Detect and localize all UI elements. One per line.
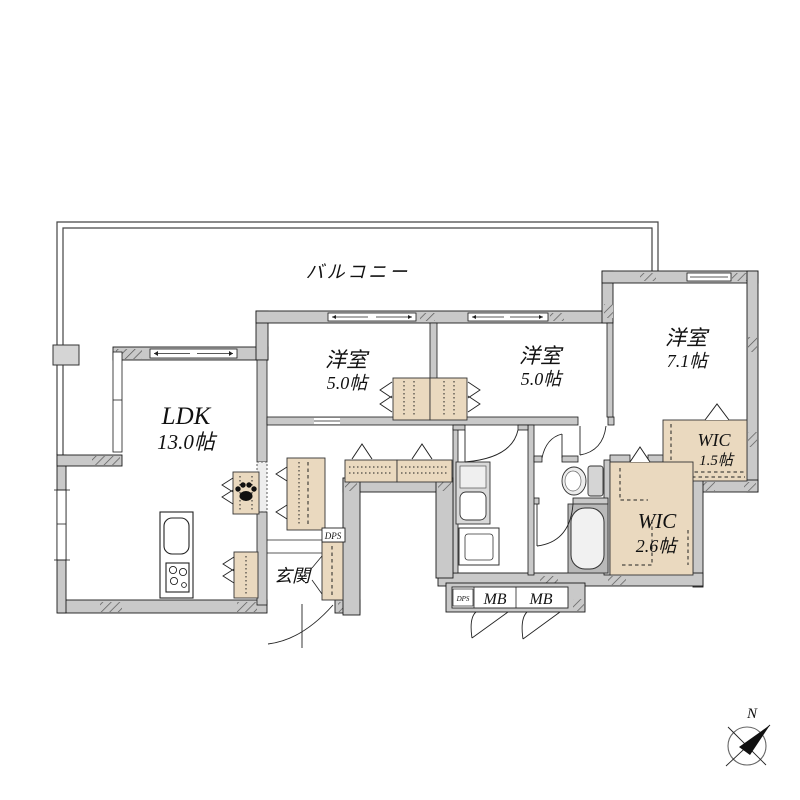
toilet-door-arc — [542, 434, 562, 458]
dps-upper-label: DPS — [324, 531, 342, 541]
folding-door-mark — [380, 382, 392, 398]
wall-hatch — [640, 273, 656, 281]
kitchen-sink — [164, 518, 189, 554]
closet-bedrooms — [380, 378, 480, 420]
window-room1-north — [328, 313, 416, 321]
mb1-label: MB — [482, 591, 506, 608]
floorplan-svg: バルコニー 洋室 5.0帖 洋室 5.0帖 洋室 7.1帖 LDK 13.0帖 … — [0, 0, 800, 800]
wall-washroom-toilet — [528, 425, 534, 575]
opening-mark — [705, 404, 729, 420]
toilet-tank — [588, 466, 603, 496]
wall-void-left — [343, 478, 360, 615]
folding-door-mark — [380, 396, 392, 412]
balcony-partition-panel — [53, 345, 79, 365]
mb-door-1 — [471, 612, 508, 638]
closet-hall-tall — [276, 458, 325, 530]
folding-door-mark — [223, 557, 234, 571]
closet-ldk-pantry — [223, 552, 258, 598]
wall-void-right — [436, 478, 453, 578]
genkan-leader-line — [312, 580, 322, 594]
dps-lower-label: DPS — [456, 595, 470, 603]
opening-mark — [412, 444, 432, 459]
ldk-name: LDK — [161, 403, 212, 430]
wall-room1-room2 — [430, 323, 437, 380]
vanity-cabinet — [460, 466, 486, 488]
wall-hatch — [100, 602, 122, 612]
opening-mark — [352, 444, 372, 459]
opening-mark — [630, 447, 650, 462]
wall-ldk-hall-upper — [257, 360, 267, 462]
wall-hatch — [438, 481, 451, 491]
wall-washroom-north-a — [453, 425, 465, 430]
room2-name: 洋室 — [519, 344, 564, 368]
room3-size: 7.1帖 — [667, 351, 711, 371]
wall-hatch — [550, 313, 564, 321]
window-room2-north — [468, 313, 548, 321]
wall-south-west — [58, 600, 267, 613]
genkan-leader-line — [312, 556, 322, 568]
closet-genkan — [322, 542, 343, 600]
window-ldk-north — [150, 349, 237, 358]
floorplan-canvas: バルコニー 洋室 5.0帖 洋室 5.0帖 洋室 7.1帖 LDK 13.0帖 … — [0, 0, 800, 800]
wall-se-side — [693, 480, 703, 587]
window-west-lower — [54, 490, 70, 560]
genkan-label: 玄関 — [274, 566, 313, 586]
wic1-name: WIC — [698, 430, 732, 450]
wic1-size: 1.5帖 — [699, 452, 735, 469]
wall-wic2-top-right — [648, 455, 663, 462]
wall-hatch — [744, 482, 756, 491]
folding-door-mark — [276, 505, 287, 519]
wash-basin — [460, 492, 486, 520]
wall-wic2-top-left — [610, 455, 630, 462]
kitchen — [160, 512, 193, 598]
folding-door-mark — [468, 396, 480, 412]
wall-washroom-north-b — [518, 425, 528, 430]
wall-hatch — [604, 304, 613, 318]
wic2-name: WIC — [638, 509, 677, 533]
folding-door-mark — [276, 467, 287, 481]
room-doors — [580, 426, 606, 455]
ldk-size: 13.0帖 — [157, 430, 218, 454]
wall-hatch — [92, 456, 120, 465]
wall-ldk-hall-lower — [257, 512, 267, 605]
wall-hatch — [608, 576, 626, 585]
toilet-bowl-inner — [565, 471, 581, 491]
wic2-size: 2.6帖 — [636, 536, 680, 556]
window-room3-north — [687, 273, 731, 281]
washroom-door-arc — [465, 430, 518, 462]
compass — [726, 725, 770, 766]
wall-toilet-bath — [573, 498, 608, 504]
mb2-label: MB — [528, 591, 552, 608]
bathroom — [537, 504, 608, 573]
balcony-label: バルコニー — [306, 262, 411, 282]
room1-size: 5.0帖 — [327, 373, 371, 393]
room1-name: 洋室 — [325, 348, 370, 372]
window-ldk-west-glasswall — [113, 352, 122, 452]
wall-toilet-north-a — [534, 456, 542, 462]
compass-north-label: N — [746, 706, 758, 722]
wall-hall-north-end — [608, 417, 614, 425]
folding-door-mark — [222, 490, 233, 504]
toilet-room — [542, 434, 603, 496]
room2-door-arc — [580, 426, 606, 455]
room3-name: 洋室 — [665, 326, 710, 350]
wall-east — [747, 271, 758, 492]
wall-room2-room3 — [607, 323, 613, 417]
meter-boxes — [446, 583, 585, 639]
folding-door-mark — [468, 382, 480, 398]
closet-hallway — [345, 444, 452, 482]
wall-hatch — [420, 313, 435, 321]
wall-hatch — [748, 432, 757, 447]
folding-door-mark — [222, 478, 233, 492]
wall-hatch — [748, 337, 757, 352]
mb-door-2 — [522, 612, 560, 639]
kitchen-stove — [166, 563, 189, 592]
bathtub — [571, 508, 604, 569]
wall-hatch — [237, 602, 257, 612]
room2-size: 5.0帖 — [521, 369, 565, 389]
washroom — [456, 430, 518, 565]
folding-door-mark — [223, 569, 234, 583]
pet-cabinet — [222, 472, 259, 514]
wall-hatch — [345, 481, 357, 491]
wall-toilet-north-b — [562, 456, 578, 462]
entry-door-arc — [268, 605, 333, 644]
wall-hatch — [573, 599, 584, 611]
